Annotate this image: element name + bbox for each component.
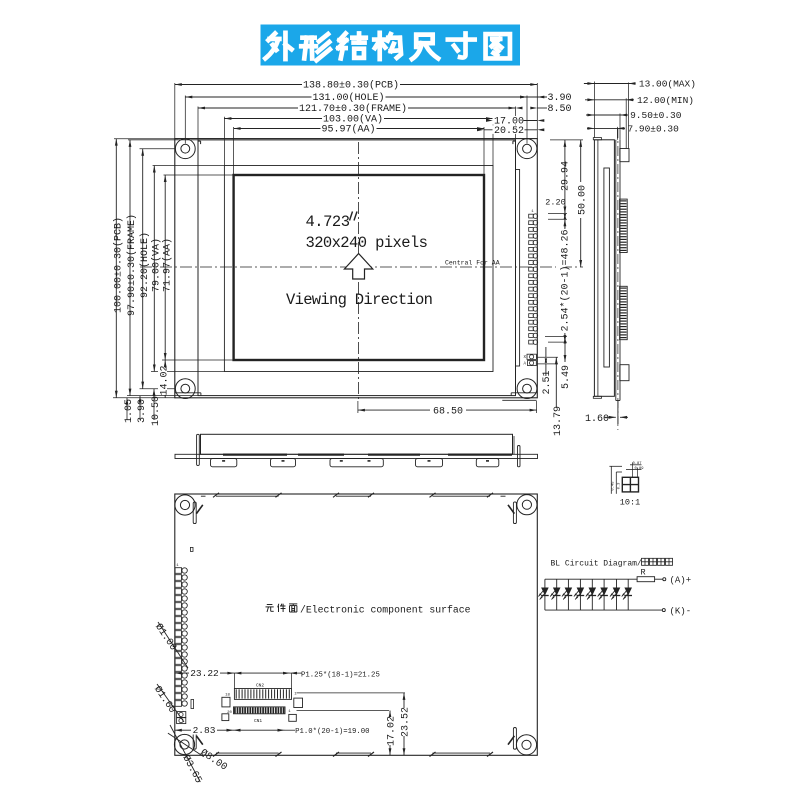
svg-text:2.83: 2.83 bbox=[193, 725, 216, 736]
svg-text:A: A bbox=[523, 362, 526, 366]
svg-text:X: X bbox=[523, 356, 526, 360]
svg-text:P1.25*(18-1)=21.25: P1.25*(18-1)=21.25 bbox=[301, 672, 380, 680]
svg-text:7.90±0.30: 7.90±0.30 bbox=[628, 124, 680, 135]
svg-text:138.80±0.30(PCB): 138.80±0.30(PCB) bbox=[303, 80, 399, 92]
svg-text:100.00±0.30(PCB): 100.00±0.30(PCB) bbox=[113, 217, 125, 313]
svg-text:12.00(MIN): 12.00(MIN) bbox=[637, 95, 694, 106]
svg-text:3.90: 3.90 bbox=[548, 93, 572, 104]
svg-text:50.00: 50.00 bbox=[577, 185, 588, 215]
svg-text:1: 1 bbox=[531, 210, 534, 214]
svg-text:(A)+: (A)+ bbox=[670, 576, 692, 586]
svg-text:3.90: 3.90 bbox=[137, 399, 148, 423]
svg-text:9.50±0.30: 9.50±0.30 bbox=[630, 110, 682, 121]
svg-text:(K)-: (K)- bbox=[670, 606, 692, 616]
svg-text:2.54*(20-1)=48.26: 2.54*(20-1)=48.26 bbox=[560, 229, 572, 331]
svg-text:/Electronic component surface: /Electronic component surface bbox=[300, 604, 471, 615]
svg-text:8.50: 8.50 bbox=[548, 104, 572, 115]
svg-text:0.3: 0.3 bbox=[617, 482, 621, 490]
svg-text:1: 1 bbox=[288, 710, 291, 714]
svg-text:R: R bbox=[640, 568, 645, 578]
svg-text:18: 18 bbox=[225, 693, 230, 697]
svg-text:2.20: 2.20 bbox=[545, 198, 565, 208]
svg-text:121.70±0.30(FRAME): 121.70±0.30(FRAME) bbox=[299, 103, 407, 115]
svg-text:1.05: 1.05 bbox=[124, 399, 135, 423]
svg-text:4.723: 4.723 bbox=[306, 213, 350, 231]
svg-text:68.50: 68.50 bbox=[433, 406, 463, 417]
svg-text:BL Circuit Diagram/: BL Circuit Diagram/ bbox=[551, 560, 642, 569]
svg-text:0.45: 0.45 bbox=[611, 481, 615, 491]
svg-text:10.50: 10.50 bbox=[151, 396, 162, 426]
svg-text:17.02: 17.02 bbox=[387, 716, 398, 746]
svg-text:P1.0*(20-1)=19.00: P1.0*(20-1)=19.00 bbox=[295, 728, 369, 736]
svg-text:13.00(MAX): 13.00(MAX) bbox=[639, 79, 696, 90]
svg-text:131.00(HOLE): 131.00(HOLE) bbox=[312, 92, 384, 104]
svg-text:1: 1 bbox=[176, 564, 179, 568]
svg-text:95.97(AA): 95.97(AA) bbox=[321, 124, 375, 136]
svg-text:5.49: 5.49 bbox=[561, 365, 572, 389]
svg-text:23.22: 23.22 bbox=[190, 668, 219, 679]
svg-text:14.02: 14.02 bbox=[160, 365, 171, 395]
svg-text:13.79: 13.79 bbox=[553, 406, 564, 436]
svg-text:97.90±0.30(FRAME): 97.90±0.30(FRAME) bbox=[126, 214, 138, 316]
svg-text:10:1: 10:1 bbox=[620, 498, 640, 508]
svg-text:0.87: 0.87 bbox=[632, 462, 641, 466]
svg-text:Ø8.00: Ø8.00 bbox=[198, 747, 230, 774]
svg-text:Central For AA: Central For AA bbox=[445, 260, 500, 267]
svg-text:2.51: 2.51 bbox=[542, 370, 553, 394]
svg-text:Ø1.60: Ø1.60 bbox=[151, 684, 178, 716]
svg-text:20.52: 20.52 bbox=[494, 126, 524, 137]
svg-text:CN2: CN2 bbox=[256, 683, 264, 689]
svg-text:320x240 pixels: 320x240 pixels bbox=[306, 234, 428, 252]
svg-text:1.60: 1.60 bbox=[585, 414, 609, 425]
svg-text:79.00(VA): 79.00(VA) bbox=[151, 238, 163, 292]
svg-text:CN1: CN1 bbox=[254, 718, 262, 724]
svg-text:71.97(AA): 71.97(AA) bbox=[161, 238, 173, 292]
svg-text:92.20(HOLE): 92.20(HOLE) bbox=[139, 232, 151, 298]
svg-text:Viewing Direction: Viewing Direction bbox=[286, 291, 432, 309]
svg-text:29.94: 29.94 bbox=[561, 161, 572, 191]
svg-text:23.52: 23.52 bbox=[401, 707, 412, 737]
svg-text:0.89: 0.89 bbox=[634, 467, 644, 471]
